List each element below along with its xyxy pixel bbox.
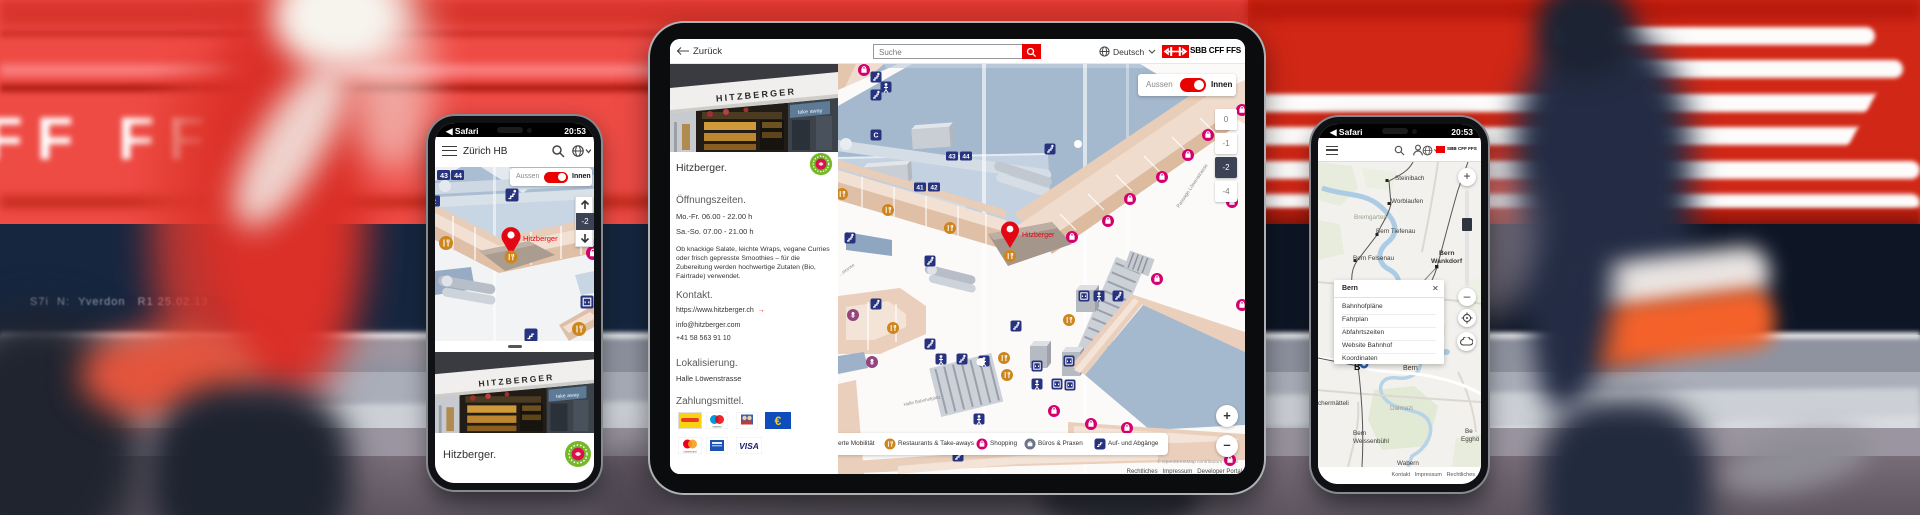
svg-text:41: 41 xyxy=(916,184,924,191)
svg-text:Rechtliches Impressum Deve: Rechtliches Impressum Developer Portal xyxy=(1127,469,1242,474)
svg-text:44: 44 xyxy=(962,153,970,160)
svg-text:Egghö: Egghö xyxy=(1461,436,1480,443)
svg-text:43: 43 xyxy=(948,153,956,160)
svg-text:Weissenbühl: Weissenbühl xyxy=(1353,438,1389,445)
svg-text:2: 2 xyxy=(435,199,436,206)
svg-text:Bern: Bern xyxy=(1353,430,1367,437)
svg-text:Be: Be xyxy=(1465,428,1473,435)
svg-text:Bern Tiefenau: Bern Tiefenau xyxy=(1376,228,1416,235)
svg-text:Hitzberger: Hitzberger xyxy=(523,234,558,243)
svg-text:44: 44 xyxy=(454,173,462,180)
svg-text:maestro: maestro xyxy=(712,425,722,429)
svg-text:Wankdorf: Wankdorf xyxy=(1431,258,1463,265)
svg-text:Bern Felsenau: Bern Felsenau xyxy=(1353,255,1394,262)
svg-text:mastercard: mastercard xyxy=(684,450,698,454)
svg-text:Bremgarten: Bremgarten xyxy=(1354,214,1387,221)
svg-text:Bern: Bern xyxy=(1403,365,1418,372)
svg-text:Bern: Bern xyxy=(1439,250,1455,257)
svg-text:43: 43 xyxy=(440,173,448,180)
svg-text:chermätteli: chermätteli xyxy=(1318,400,1349,407)
svg-text:Worblaufen: Worblaufen xyxy=(1391,198,1424,205)
svg-text:C: C xyxy=(873,133,878,140)
svg-text:VISA: VISA xyxy=(739,441,759,451)
svg-text:€: € xyxy=(775,414,782,428)
svg-text:Steinibach: Steinibach xyxy=(1395,175,1425,182)
svg-text:Wabern: Wabern xyxy=(1397,460,1419,467)
svg-text:42: 42 xyxy=(930,184,938,191)
svg-text:Dalmazi: Dalmazi xyxy=(1390,405,1413,412)
svg-text:Hitzberger: Hitzberger xyxy=(1022,232,1055,239)
